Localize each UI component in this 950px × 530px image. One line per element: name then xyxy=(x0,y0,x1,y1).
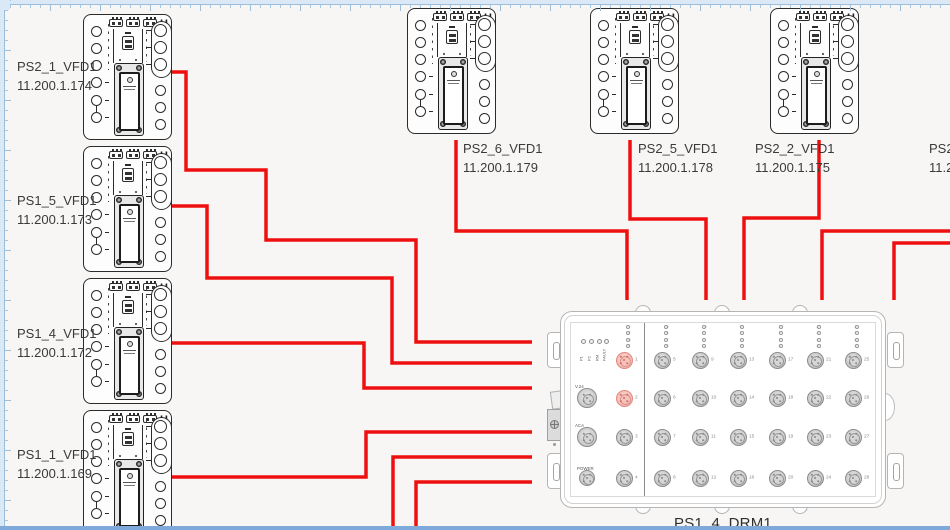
port-led-row: 1 xyxy=(610,324,630,330)
device-ip: 11.200.1.178 xyxy=(638,159,718,178)
drm-side-port-aca xyxy=(577,427,597,447)
drm-port-24 xyxy=(807,470,824,487)
drm-port-number: 27 xyxy=(864,434,869,439)
screw-icon xyxy=(136,461,142,467)
port-mark xyxy=(146,460,151,461)
connector-detail xyxy=(125,296,131,298)
drm-side-port-label: ACA xyxy=(575,424,584,428)
drm-port-11 xyxy=(692,429,709,446)
body-outline xyxy=(113,161,114,195)
screw-icon xyxy=(116,65,122,71)
m12-port-circle xyxy=(91,376,102,387)
body-outline xyxy=(649,23,650,57)
device-label[interactable]: PS2_2_VFD111.200.1.175 xyxy=(755,140,835,177)
m12-port-circle xyxy=(842,79,853,90)
m12-port-circle xyxy=(155,383,166,394)
module-fine-print xyxy=(810,80,823,85)
status-led-label: RM xyxy=(595,355,600,361)
device-name: PS1_1_VFD1 xyxy=(17,446,97,465)
vfd-device[interactable]: H xyxy=(590,8,679,134)
vfd-device[interactable]: H xyxy=(770,8,859,134)
pin-dots xyxy=(119,455,121,457)
port-led xyxy=(702,338,706,342)
brand-logo-icon xyxy=(634,71,640,77)
cable-link[interactable] xyxy=(393,457,532,530)
screw-icon xyxy=(136,65,142,71)
port-led xyxy=(817,325,821,329)
terminal-connector-icon xyxy=(126,283,140,291)
drm-port-18 xyxy=(769,390,786,407)
drm-port-number: 19 xyxy=(788,434,793,439)
port-led xyxy=(740,325,744,329)
m12-port-circle xyxy=(155,498,166,509)
m12-port-circle xyxy=(479,79,490,90)
screw-icon xyxy=(803,59,809,65)
body-outline xyxy=(113,293,114,327)
m12-port-circle xyxy=(478,52,491,65)
port-led-row: 12 xyxy=(686,343,706,349)
port-mark xyxy=(105,364,109,365)
tick-column xyxy=(432,18,433,64)
drm-side-port-label: V.24 xyxy=(575,385,584,389)
drm-port-3 xyxy=(616,429,633,446)
m12-port-circle xyxy=(91,290,102,301)
port-mark xyxy=(146,64,151,65)
port-mark xyxy=(792,111,796,112)
drm-port-21 xyxy=(807,352,824,369)
m12-port-circle xyxy=(778,20,789,31)
drm-port-number: 3 xyxy=(635,434,638,439)
port-mark xyxy=(470,58,475,59)
port-led-row: 13 xyxy=(724,324,744,330)
port-mark xyxy=(105,82,109,83)
m12-port-circle xyxy=(479,96,490,107)
body-outline xyxy=(142,425,143,459)
device-name: PS2_ xyxy=(929,140,950,159)
pin-dots xyxy=(119,323,121,325)
port-led-row: 17 xyxy=(763,324,783,330)
port-mark xyxy=(612,94,616,95)
port-led-row: 23 xyxy=(801,337,821,343)
drm-port-19 xyxy=(769,429,786,446)
port-led-row: 16 xyxy=(724,343,744,349)
m12-port-circle xyxy=(478,35,491,48)
cable-link[interactable] xyxy=(894,243,950,300)
m12-port-circle xyxy=(842,113,853,124)
screw-icon xyxy=(136,329,142,335)
drm-port-number: 28 xyxy=(864,475,869,480)
port-mark xyxy=(105,496,109,497)
port-mark xyxy=(105,249,109,250)
pin-dots xyxy=(135,191,137,193)
body-outline xyxy=(829,23,830,57)
terminal-connector-icon xyxy=(813,13,827,21)
m12-port-circle xyxy=(598,37,609,48)
module-fine-print xyxy=(630,80,643,85)
port-mark xyxy=(146,426,151,427)
terminal-connector-icon xyxy=(126,151,140,159)
terminal-connector-icon xyxy=(109,19,123,27)
m12-port-circle xyxy=(154,173,167,186)
port-led xyxy=(702,325,706,329)
drm-port-number: 4 xyxy=(635,475,638,480)
drm-port-14 xyxy=(730,390,747,407)
port-led xyxy=(740,338,744,342)
port-led-row: 3 xyxy=(610,337,630,343)
port-led-row: 24 xyxy=(801,343,821,349)
drm-port-number: 7 xyxy=(673,434,676,439)
m12-port-circle xyxy=(661,35,674,48)
terminal-connector-icon xyxy=(616,13,630,21)
pin-dots xyxy=(642,53,644,55)
port-led-row: 11 xyxy=(686,337,706,343)
port-mark xyxy=(792,76,796,77)
port-led xyxy=(664,325,668,329)
m12-port-circle xyxy=(415,37,426,48)
m12-port-circle xyxy=(415,89,426,100)
port-mark xyxy=(612,111,616,112)
port-led xyxy=(779,338,783,342)
m12-port-circle xyxy=(154,420,167,433)
port-led-row: 25 xyxy=(839,324,859,330)
drm-port-2 xyxy=(616,390,633,407)
status-led xyxy=(589,339,594,344)
status-led xyxy=(597,339,602,344)
drm-port-17 xyxy=(769,352,786,369)
port-mark xyxy=(833,58,838,59)
port-mark xyxy=(105,117,109,118)
drm-port-number: 23 xyxy=(826,434,831,439)
device-label-partial[interactable]: PS2_ 11.2 xyxy=(929,140,950,177)
m12-port-circle xyxy=(842,96,853,107)
port-led xyxy=(779,325,783,329)
m12-port-circle xyxy=(778,37,789,48)
port-block-icon xyxy=(122,300,134,314)
port-led-row: 9 xyxy=(686,324,706,330)
drm-port-13 xyxy=(730,352,747,369)
m12-port-circle xyxy=(155,481,166,492)
port-mark xyxy=(653,58,658,59)
pin-dots xyxy=(135,59,137,61)
device-label[interactable]: PS1_1_VFD111.200.1.169 xyxy=(17,446,97,483)
m12-port-circle xyxy=(91,158,102,169)
device-name: PS1_5_VFD1 xyxy=(17,192,97,211)
port-led xyxy=(626,325,630,329)
connector-detail xyxy=(125,428,131,430)
m12-port-circle xyxy=(154,305,167,318)
network-diagram-canvas[interactable]: H xyxy=(0,0,950,530)
m12-port-circle xyxy=(91,244,102,255)
port-led-row: 22 xyxy=(801,330,821,336)
drm-port-number: 24 xyxy=(826,475,831,480)
port-led xyxy=(817,338,821,342)
module-panel xyxy=(119,204,140,263)
drm-port-number: 25 xyxy=(864,357,869,362)
drm-port-number: 12 xyxy=(711,475,716,480)
device-name: PS2_1_VFD1 xyxy=(17,58,97,77)
body-outline xyxy=(142,161,143,195)
center-module xyxy=(114,327,144,400)
pin-dots xyxy=(135,323,137,325)
center-module xyxy=(114,195,144,268)
pin-dots xyxy=(822,53,824,55)
m12-port-circle xyxy=(778,71,789,82)
drm-port-23 xyxy=(807,429,824,446)
device-ip: 11.200.1.174 xyxy=(17,77,97,96)
drm-port-number: 9 xyxy=(711,357,714,362)
module-fine-print xyxy=(123,86,136,91)
screw-icon xyxy=(643,59,649,65)
brand-logo-icon xyxy=(451,71,457,77)
cable-link[interactable] xyxy=(172,432,532,477)
module-panel xyxy=(119,468,140,527)
drm-port-7 xyxy=(654,429,671,446)
terminal-connector-icon xyxy=(109,415,123,423)
connector-detail xyxy=(125,164,131,166)
drm-port-26 xyxy=(845,390,862,407)
m12-port-circle xyxy=(155,217,166,228)
cable-link[interactable] xyxy=(416,482,532,530)
device-ip: 11.200.1.173 xyxy=(17,211,97,230)
port-mark xyxy=(105,381,109,382)
m12-port-circle xyxy=(91,112,102,123)
device-label[interactable]: PS1_5_VFD111.200.1.173 xyxy=(17,192,97,229)
pin-dots xyxy=(135,455,137,457)
drm-side-port-v24 xyxy=(577,388,597,408)
ruler-left xyxy=(0,0,5,530)
tick-column xyxy=(108,420,109,466)
body-outline xyxy=(800,23,801,57)
port-led xyxy=(855,338,859,342)
connector-detail xyxy=(632,26,638,28)
connector-detail xyxy=(125,32,131,34)
m12-port-circle xyxy=(778,89,789,100)
port-mark xyxy=(146,179,151,180)
cable-link[interactable] xyxy=(172,343,532,388)
m12-port-circle xyxy=(661,52,674,65)
port-mark xyxy=(105,100,109,101)
screw-icon xyxy=(460,59,466,65)
center-module xyxy=(438,57,468,130)
drm-port-22 xyxy=(807,390,824,407)
port-led-row: 18 xyxy=(763,330,783,336)
m12-port-circle xyxy=(415,20,426,31)
module-panel xyxy=(806,66,827,125)
drm-device[interactable]: P1P2RMFAULT12345678910111213141516171819… xyxy=(545,303,907,530)
drm-bracket-ear xyxy=(887,332,904,368)
drm-port-number: 13 xyxy=(749,357,754,362)
m12-port-circle xyxy=(91,491,102,502)
drm-port-number: 18 xyxy=(788,395,793,400)
port-block-icon xyxy=(446,30,458,44)
drm-port-number: 21 xyxy=(826,357,831,362)
terminal-connector-icon xyxy=(109,151,123,159)
m12-port-circle xyxy=(598,20,609,31)
m12-port-circle xyxy=(155,102,166,113)
drm-port-1 xyxy=(616,352,633,369)
device-label[interactable]: PS2_5_VFD111.200.1.178 xyxy=(638,140,718,177)
drm-port-9 xyxy=(692,352,709,369)
screw-icon xyxy=(116,461,122,467)
device-ip: 11.200.1.175 xyxy=(755,159,835,178)
drm-port-number: 17 xyxy=(788,357,793,362)
port-mark xyxy=(146,47,151,48)
center-module xyxy=(114,63,144,136)
port-led-row: 26 xyxy=(839,330,859,336)
tick-column xyxy=(108,24,109,70)
vfd-device[interactable]: H xyxy=(407,8,496,134)
port-led-row: 10 xyxy=(686,330,706,336)
body-outline xyxy=(113,29,114,63)
drm-port-10 xyxy=(692,390,709,407)
m12-port-circle xyxy=(155,366,166,377)
device-label[interactable]: PS1_4_VFD111.200.1.172 xyxy=(17,325,97,362)
pin-dots xyxy=(119,59,121,61)
body-outline xyxy=(620,23,621,57)
body-outline xyxy=(437,23,438,57)
drm-port-4 xyxy=(616,470,633,487)
m12-port-circle xyxy=(154,454,167,467)
m12-port-circle xyxy=(91,307,102,318)
port-led-row: 14 xyxy=(724,330,744,336)
device-label[interactable]: PS2_1_VFD111.200.1.174 xyxy=(17,58,97,95)
m12-port-circle xyxy=(661,18,674,31)
drm-port-number: 2 xyxy=(635,395,638,400)
port-mark xyxy=(653,41,658,42)
port-mark xyxy=(105,478,109,479)
brand-logo-icon xyxy=(127,77,133,83)
m12-port-circle xyxy=(662,113,673,124)
body-outline xyxy=(142,29,143,63)
device-ip: 11.2 xyxy=(929,159,950,178)
screw-icon xyxy=(440,59,446,65)
drm-port-number: 8 xyxy=(673,475,676,480)
port-block-icon xyxy=(629,30,641,44)
port-mark xyxy=(146,328,151,329)
module-fine-print xyxy=(447,80,460,85)
port-mark xyxy=(470,41,475,42)
m12-port-circle xyxy=(155,85,166,96)
center-module xyxy=(114,459,144,530)
drm-bracket-notch xyxy=(885,393,895,421)
port-mark xyxy=(105,346,109,347)
center-module xyxy=(621,57,651,130)
drm-clamp-dot xyxy=(553,443,556,446)
port-mark xyxy=(429,111,433,112)
m12-port-circle xyxy=(778,106,789,117)
brand-logo-icon xyxy=(127,209,133,215)
m12-port-circle xyxy=(415,106,426,117)
device-name: PS2_2_VFD1 xyxy=(755,140,835,159)
terminal-connector-icon xyxy=(796,13,810,21)
connector-detail xyxy=(812,26,818,28)
drm-port-number: 26 xyxy=(864,395,869,400)
port-led-row: 5 xyxy=(648,324,668,330)
port-led-row: 27 xyxy=(839,337,859,343)
port-mark xyxy=(470,24,475,25)
drm-section-divider xyxy=(644,323,645,496)
status-led-label: P2 xyxy=(587,356,592,361)
port-led xyxy=(855,325,859,329)
ruler-top xyxy=(0,0,950,5)
device-label[interactable]: PS2_6_VFD111.200.1.179 xyxy=(463,140,543,177)
screw-icon xyxy=(136,197,142,203)
m12-port-circle xyxy=(154,41,167,54)
port-mark xyxy=(429,94,433,95)
drm-port-number: 22 xyxy=(826,395,831,400)
module-panel xyxy=(119,72,140,131)
m12-port-circle xyxy=(155,515,166,526)
device-name: PS2_5_VFD1 xyxy=(638,140,718,159)
port-led-row: 4 xyxy=(610,343,630,349)
module-panel xyxy=(626,66,647,125)
screw-icon xyxy=(550,420,559,429)
body-outline xyxy=(466,23,467,57)
pin-dots xyxy=(626,53,628,55)
port-mark xyxy=(833,24,838,25)
drm-port-number: 1 xyxy=(635,357,638,362)
brand-logo-icon xyxy=(127,473,133,479)
drm-port-12 xyxy=(692,470,709,487)
center-module xyxy=(801,57,831,130)
device-ip: 11.200.1.172 xyxy=(17,344,97,363)
screw-icon xyxy=(116,197,122,203)
status-led xyxy=(581,339,586,344)
m12-port-circle xyxy=(155,234,166,245)
m12-port-circle xyxy=(154,58,167,71)
pin-dots xyxy=(459,53,461,55)
port-block-icon xyxy=(122,432,134,446)
port-led-row: 19 xyxy=(763,337,783,343)
m12-port-circle xyxy=(478,18,491,31)
terminal-connector-icon xyxy=(433,13,447,21)
brand-logo-icon xyxy=(814,71,820,77)
m12-port-circle xyxy=(415,54,426,65)
m12-port-circle xyxy=(154,288,167,301)
connector-detail xyxy=(449,26,455,28)
port-led-row: 21 xyxy=(801,324,821,330)
pin-dots xyxy=(443,53,445,55)
port-mark xyxy=(612,76,616,77)
screw-icon xyxy=(116,329,122,335)
port-mark xyxy=(146,30,151,31)
device-name: PS1_4_VFD1 xyxy=(17,325,97,344)
module-fine-print xyxy=(123,350,136,355)
ruler-corner xyxy=(0,0,10,10)
terminal-connector-icon xyxy=(109,283,123,291)
m12-port-circle xyxy=(154,24,167,37)
drm-port-16 xyxy=(730,470,747,487)
screw-icon xyxy=(623,59,629,65)
drm-port-number: 10 xyxy=(711,395,716,400)
port-mark xyxy=(146,196,151,197)
drm-port-28 xyxy=(845,470,862,487)
port-led-row: 20 xyxy=(763,343,783,349)
m12-port-circle xyxy=(662,96,673,107)
module-fine-print xyxy=(123,482,136,487)
tick-column xyxy=(795,18,796,64)
m12-port-circle xyxy=(415,71,426,82)
port-mark xyxy=(105,214,109,215)
pin-dots xyxy=(806,53,808,55)
port-mark xyxy=(105,232,109,233)
m12-port-circle xyxy=(91,43,102,54)
m12-port-circle xyxy=(155,119,166,130)
port-led-row: 28 xyxy=(839,343,859,349)
brand-logo-icon xyxy=(127,341,133,347)
port-led-row: 6 xyxy=(648,330,668,336)
tick-column xyxy=(108,288,109,334)
